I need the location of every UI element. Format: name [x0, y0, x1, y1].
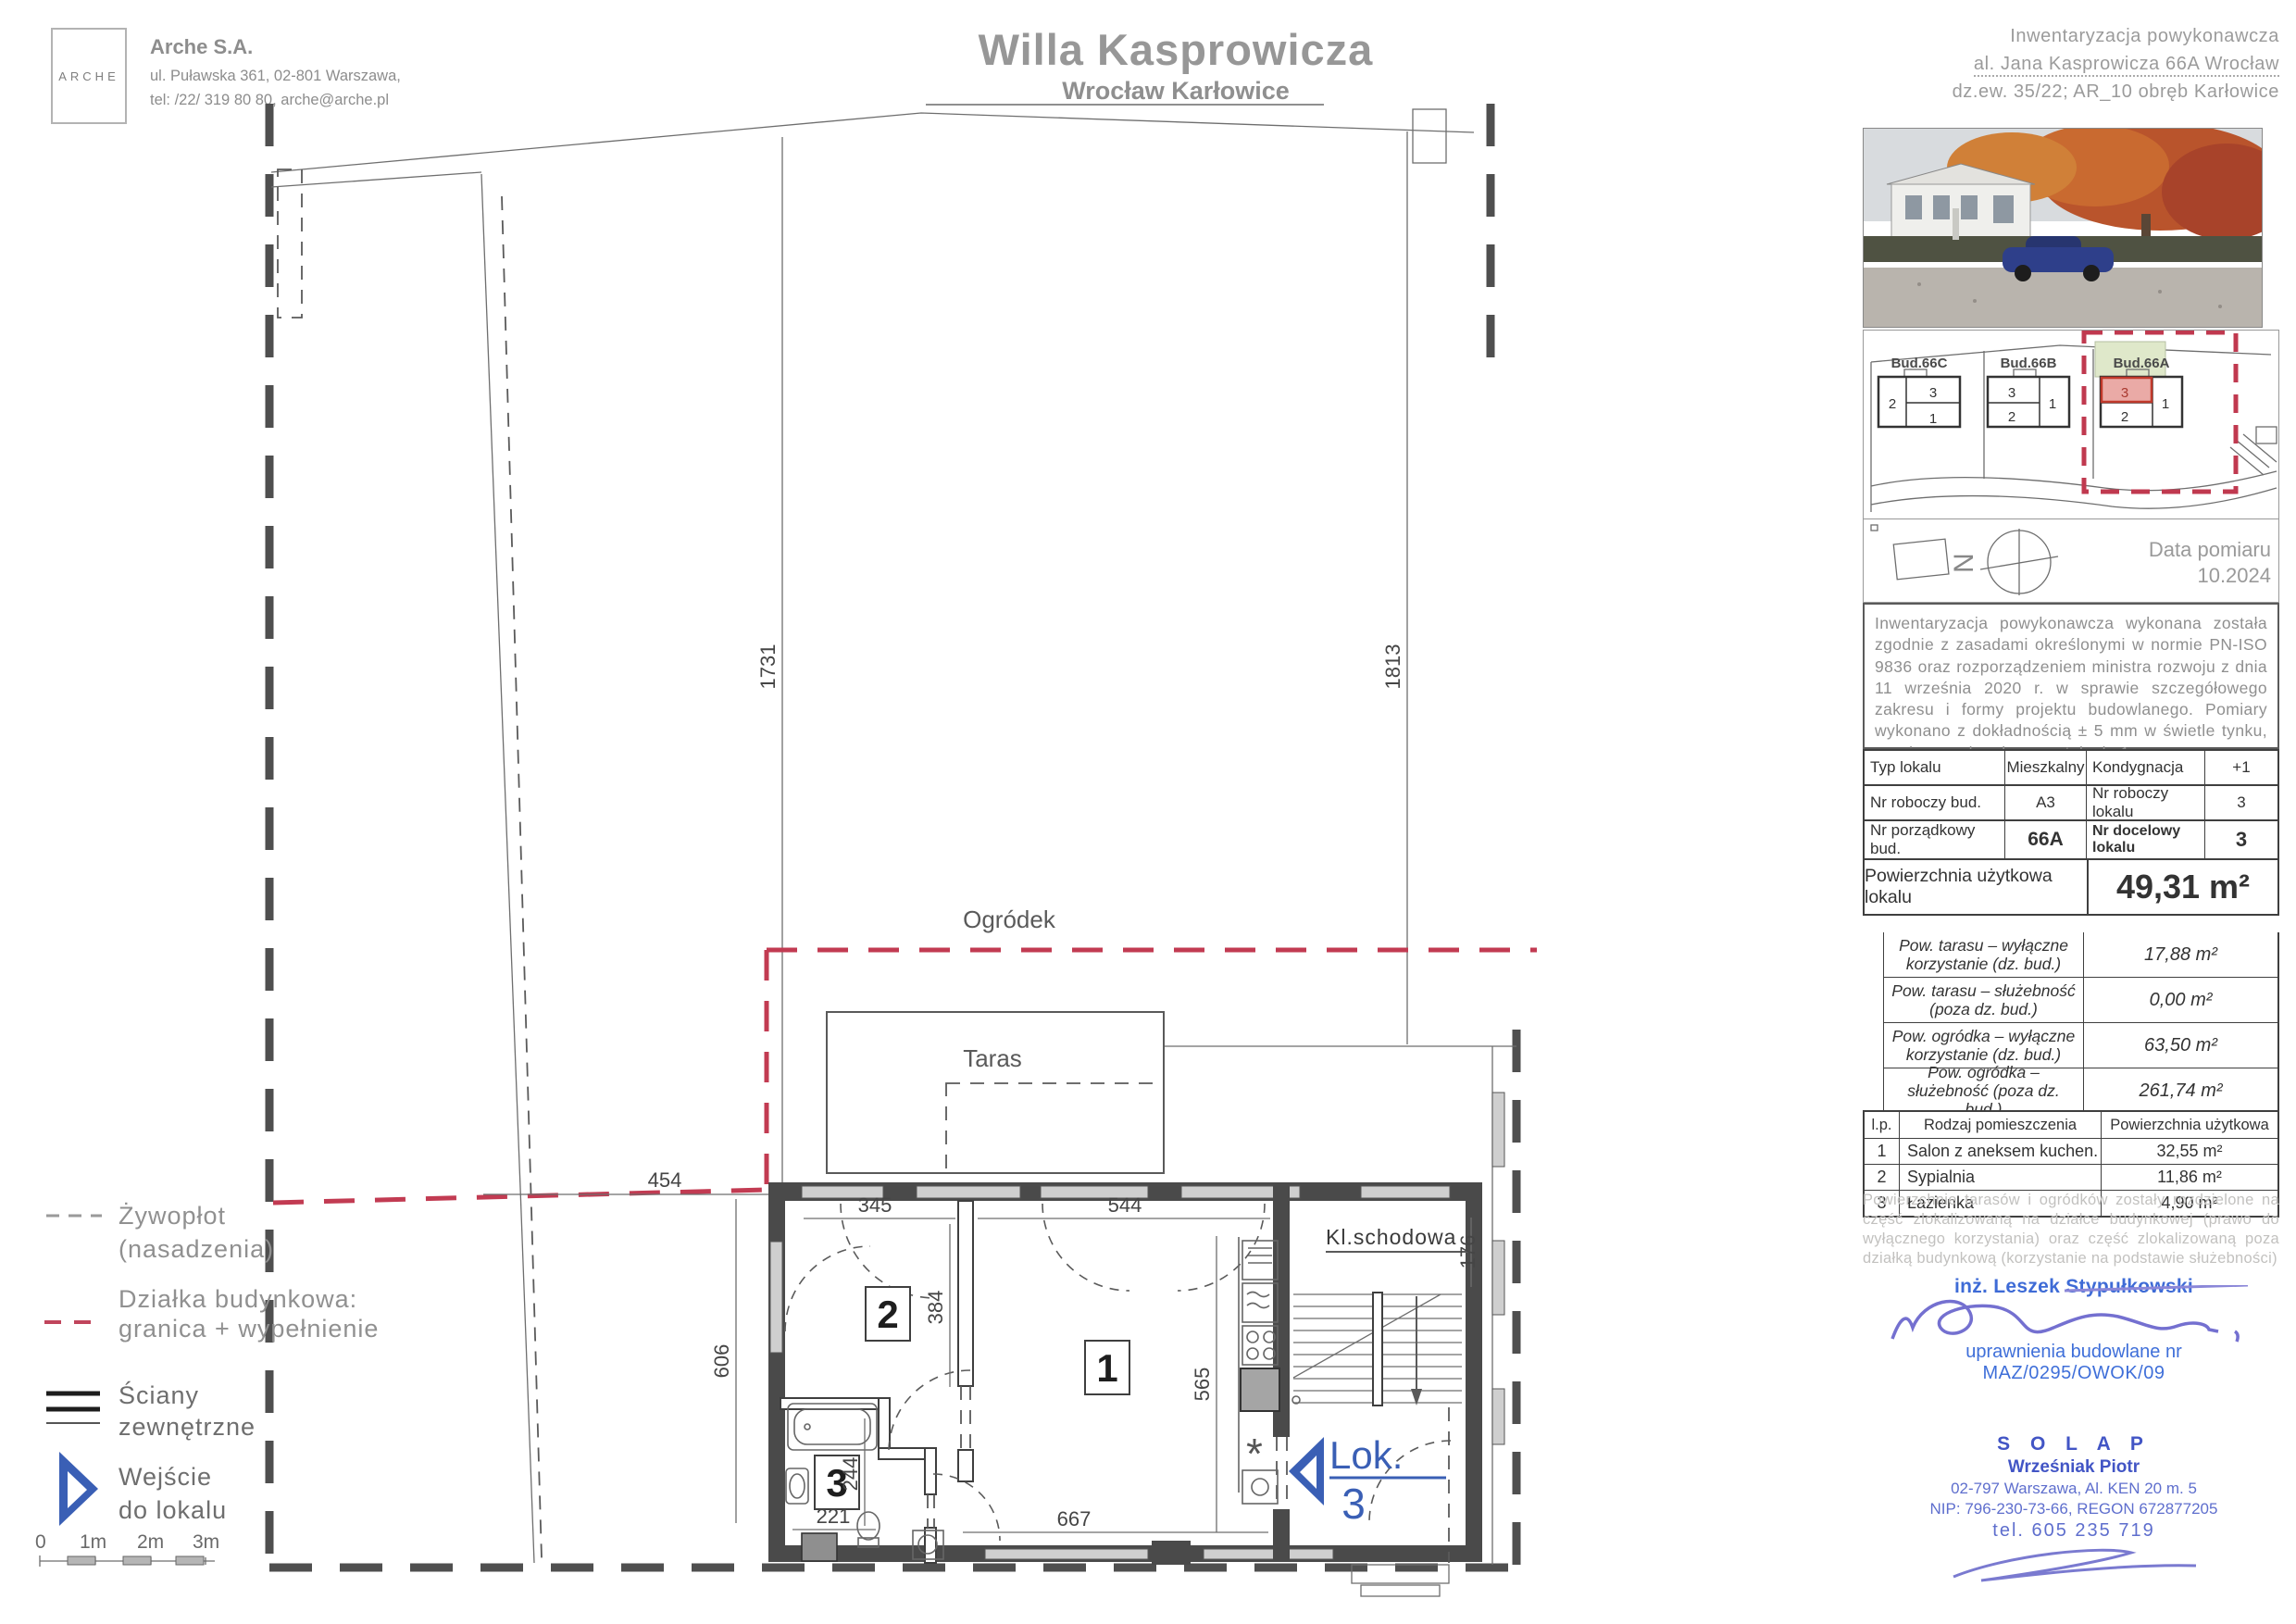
site-bud-66a: Bud.66A 3 2 1 — [2095, 342, 2182, 427]
parcel-boundary-red — [273, 950, 1537, 1203]
terrace-dashed-part — [946, 1083, 1164, 1173]
stamp-nip-regon: NIP: 796-230-73-66, REGON 672877205 — [1870, 1500, 2277, 1518]
measure-date: 10.2024 — [2197, 564, 2271, 587]
kondygnacja-label: Kondygnacja — [2087, 751, 2205, 784]
site-unit-number: 3 — [2008, 385, 2015, 401]
lok-label: Lok. — [1329, 1433, 1403, 1477]
stamp-company: S O L A P — [1870, 1433, 2277, 1455]
legend-entry-label-2: do lokalu — [119, 1496, 227, 1524]
nr-roboczy-lokalu-value: 3 — [2205, 786, 2277, 819]
legend-parcel-label-1: Działka budynkowa: — [119, 1285, 357, 1313]
site-bud-66c: Bud.66C 2 3 1 — [1878, 356, 1960, 427]
table-row: 1 Salon z aneksem kuchen. 32,55 m² — [1865, 1139, 2277, 1165]
terrace-label: Taras — [963, 1044, 1022, 1072]
site-unit-number: 1 — [2162, 396, 2169, 412]
dim-244: 244 — [839, 1457, 862, 1492]
staircase-label: Kl.schodowa — [1326, 1225, 1456, 1249]
unit-entrance-marker: Lok. 3 — [1289, 1433, 1446, 1528]
scale-1m: 1m — [80, 1531, 106, 1553]
site-unit-number: 1 — [2049, 396, 2056, 412]
nr-docelowy-value: 3 — [2205, 821, 2277, 858]
building-photo-art — [1864, 129, 2262, 327]
interior-partitions — [780, 1201, 973, 1563]
site-key-plan: Bud.66C 2 3 1 Bud.66B 3 2 1 Bud.66A — [1863, 330, 2279, 519]
area-row: Pow. ogródka – wyłączne korzystanie (dz.… — [1884, 1023, 2277, 1068]
room-no: 1 — [1865, 1139, 1900, 1164]
scale-bar: 0 1m 2m 3m — [35, 1531, 219, 1567]
garden-label: Ogródek — [963, 906, 1056, 933]
area-value: 63,50 m² — [2084, 1023, 2277, 1068]
legend: Żywopłot (nasadzenia) Działka budynkowa:… — [35, 1201, 379, 1567]
stamp-address: 02-797 Warszawa, Al. KEN 20 m. 5 — [1870, 1480, 2277, 1498]
kitchen-asterisk: * — [1246, 1430, 1263, 1478]
method-note: Inwentaryzacja powykonawcza wykonana zos… — [1863, 603, 2279, 749]
dim-1813: 1813 — [1381, 644, 1404, 690]
typ-label: Typ lokalu — [1865, 751, 2005, 784]
site-bud-66b: Bud.66B 3 2 1 — [1988, 356, 2069, 427]
dim-384: 384 — [924, 1291, 947, 1325]
building-photo — [1863, 128, 2263, 328]
nr-porzadkowy-label: Nr porządkowy bud. — [1865, 821, 2005, 858]
area-row: Pow. tarasu – służebność (poza dz. bud.)… — [1884, 978, 2277, 1023]
dim-454: 454 — [648, 1168, 682, 1192]
doc-type: Inwentaryzacja powykonawcza — [1815, 22, 2279, 50]
dim-667: 667 — [1057, 1507, 1092, 1530]
legend-hedge-label-2: (nasadzenia) — [119, 1235, 274, 1263]
room-name: Salon z aneksem kuchen. — [1900, 1139, 2102, 1164]
stamp-person: Wrześniak Piotr — [1870, 1457, 2277, 1478]
area-row: Pow. ogródka – służebność (poza dz. bud.… — [1884, 1068, 2277, 1114]
col-area: Powierzchnia użytkowa — [2102, 1112, 2277, 1138]
date-label: Data pomiaru — [2149, 538, 2271, 561]
area-label: Pow. tarasu – służebność (poza dz. bud.) — [1884, 978, 2084, 1022]
interior-dimensions: 345 544 384 565 244 221 667 — [792, 1193, 1270, 1532]
lok-number: 3 — [1341, 1480, 1366, 1528]
doc-address: al. Jana Kasprowicza 66A Wrocław — [1815, 50, 2279, 78]
site-unit-number: 2 — [2008, 409, 2015, 425]
area-row: Pow. tarasu – wyłączne korzystanie (dz. … — [1884, 932, 2277, 978]
plot-boundary-dashed — [269, 104, 1523, 1568]
north-letter: N — [1949, 553, 1979, 573]
certificate-number: MAZ/0295/OWOK/09 — [1870, 1363, 2277, 1384]
scale-3m: 3m — [193, 1531, 219, 1553]
company-stamp: S O L A P Wrześniak Piotr 02-797 Warszaw… — [1870, 1433, 2277, 1593]
room-area: 11,86 m² — [2102, 1165, 2277, 1190]
compass-strip: N Data pomiaru 10.2024 — [1863, 519, 2279, 603]
document-page: ARCHE Arche S.A. ul. Puławska 361, 02-80… — [0, 0, 2296, 1624]
unit-info-table: Typ lokalu Mieszkalny Kondygnacja +1 Nr … — [1863, 749, 2279, 916]
col-lp: l.p. — [1865, 1112, 1900, 1138]
dim-606: 606 — [710, 1344, 733, 1379]
nr-roboczy-bud-label: Nr roboczy bud. — [1865, 786, 2005, 819]
engineer-signature-block: inż. Leszek Stypułkowski uprawnienia bud… — [1870, 1276, 2277, 1384]
area-value: 261,74 m² — [2084, 1068, 2277, 1113]
area-value: 17,88 m² — [2084, 932, 2277, 977]
rooms-header-row: l.p. Rodzaj pomieszczenia Powierzchnia u… — [1865, 1112, 2277, 1139]
stamp-phone: tel. 605 235 719 — [1870, 1520, 2277, 1542]
area-breakdown: Pow. tarasu – wyłączne korzystanie (dz. … — [1883, 932, 2279, 1114]
table-row: Nr roboczy bud. A3 Nr roboczy lokalu 3 — [1865, 786, 2277, 821]
dim-565: 565 — [1191, 1368, 1214, 1402]
dim-345: 345 — [858, 1193, 892, 1217]
legend-parcel-label-2: granica + wypełnienie — [119, 1315, 379, 1343]
usable-area-label: Powierzchnia użytkowa lokalu — [1865, 860, 2089, 914]
room-area: 32,55 m² — [2102, 1139, 2277, 1164]
typ-value: Mieszkalny — [2005, 751, 2087, 784]
dim-176: 176 — [1456, 1235, 1479, 1269]
dim-544: 544 — [1108, 1193, 1142, 1217]
area-label: Pow. ogródka – wyłączne korzystanie (dz.… — [1884, 1023, 2084, 1068]
legend-walls-label-2: zewnętrzne — [119, 1413, 256, 1441]
survey-lines — [271, 109, 1516, 1563]
nr-porzadkowy-value: 66A — [2005, 821, 2087, 858]
site-unit-number: 1 — [1929, 411, 1937, 427]
room-no: 2 — [1865, 1165, 1900, 1190]
area-label: Pow. ogródka – służebność (poza dz. bud.… — [1884, 1068, 2084, 1113]
table-row: Typ lokalu Mieszkalny Kondygnacja +1 — [1865, 751, 2277, 786]
usable-area-value: 49,31 m² — [2089, 860, 2277, 914]
scale-2m: 2m — [137, 1531, 164, 1553]
legend-entry-label-1: Wejście — [119, 1463, 212, 1491]
site-unit-number: 3 — [1929, 385, 1937, 401]
compass-art: N Data pomiaru 10.2024 — [1864, 519, 2278, 601]
col-room-type: Rodzaj pomieszczenia — [1900, 1112, 2102, 1138]
site-unit-number: 2 — [2121, 409, 2128, 425]
room-1-number: 1 — [1096, 1346, 1117, 1390]
dim-1731: 1731 — [756, 644, 780, 690]
room-name: Sypialnia — [1900, 1165, 2102, 1190]
staircase: Kl.schodowa 176 — [1292, 1218, 1479, 1596]
legend-hedge-label-1: Żywopłot — [119, 1201, 226, 1230]
doc-parcel: dz.ew. 35/22; AR_10 obręb Karłowice — [1815, 78, 2279, 106]
area-label: Pow. tarasu – wyłączne korzystanie (dz. … — [1884, 932, 2084, 977]
kondygnacja-value: +1 — [2205, 751, 2277, 784]
area-value: 0,00 m² — [2084, 978, 2277, 1022]
site-unit-number: 3 — [2121, 385, 2128, 401]
scale-0: 0 — [35, 1531, 46, 1553]
terrace-outline — [827, 1012, 1164, 1173]
nr-docelowy-label: Nr docelowy lokalu — [2087, 821, 2205, 858]
neighbour-fragment — [1492, 1046, 1504, 1565]
site-key-plan-art: Bud.66C 2 3 1 Bud.66B 3 2 1 Bud.66A — [1864, 331, 2278, 518]
usable-area-row: Powierzchnia użytkowa lokalu 49,31 m² — [1865, 860, 2277, 914]
site-floor-plan: 1731 1813 Ogródek Taras 454 606 — [0, 0, 1861, 1624]
table-row: Nr porządkowy bud. 66A Nr docelowy lokal… — [1865, 821, 2277, 860]
table-row: 2 Sypialnia 11,86 m² — [1865, 1165, 2277, 1191]
areas-footnote: Powierzchnie tarasów i ogródków zostały … — [1863, 1191, 2279, 1268]
dim-221: 221 — [817, 1505, 851, 1528]
legend-walls-label-1: Ściany — [119, 1380, 199, 1409]
nr-roboczy-lokalu-label: Nr roboczy lokalu — [2087, 786, 2205, 819]
header-right-block: Inwentaryzacja powykonawcza al. Jana Kas… — [1815, 22, 2279, 106]
stamp-signature-stroke — [1935, 1542, 2213, 1588]
room-2-number: 2 — [877, 1293, 898, 1336]
site-unit-number: 2 — [1889, 396, 1896, 412]
nr-roboczy-bud-value: A3 — [2005, 786, 2087, 819]
